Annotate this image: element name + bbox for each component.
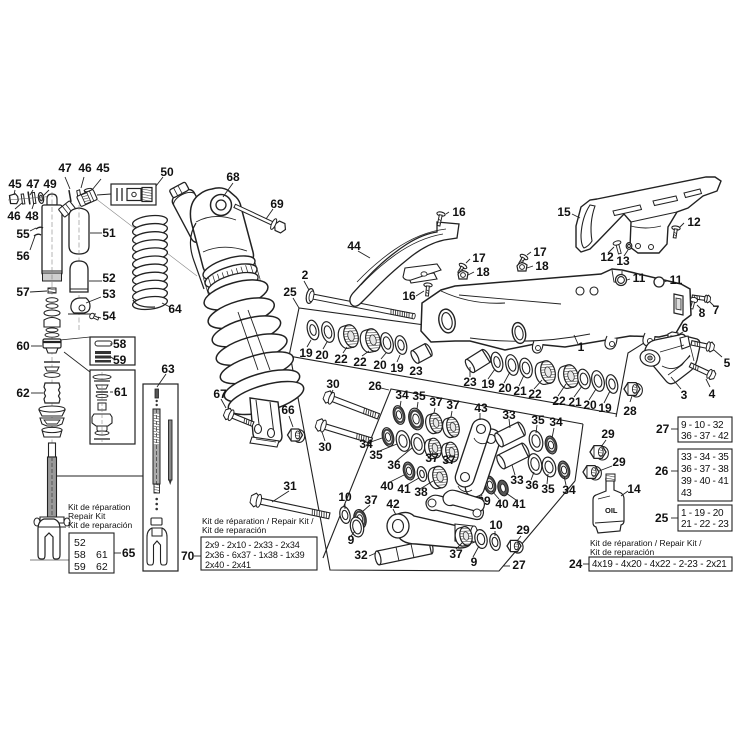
svg-text:34: 34 (562, 483, 576, 497)
svg-text:35: 35 (369, 448, 383, 462)
svg-text:1 - 19 - 20: 1 - 19 - 20 (681, 508, 724, 519)
svg-text:66: 66 (281, 403, 295, 417)
svg-text:36: 36 (525, 478, 539, 492)
svg-text:2x9 - 2x10 - 2x33 - 2x34: 2x9 - 2x10 - 2x33 - 2x34 (205, 540, 300, 550)
svg-text:54: 54 (102, 309, 116, 323)
svg-text:29: 29 (601, 427, 615, 441)
svg-text:53: 53 (102, 287, 116, 301)
svg-text:1: 1 (578, 340, 585, 354)
svg-text:Kit de reparación: Kit de reparación (202, 525, 267, 535)
svg-text:67: 67 (213, 387, 227, 401)
svg-text:20: 20 (315, 348, 329, 362)
svg-text:33: 33 (502, 408, 516, 422)
svg-text:45: 45 (8, 177, 22, 191)
svg-text:48: 48 (25, 209, 39, 223)
svg-text:22: 22 (552, 394, 566, 408)
svg-text:26: 26 (368, 379, 382, 393)
svg-text:37: 37 (446, 398, 460, 412)
svg-text:16: 16 (402, 289, 416, 303)
svg-text:20: 20 (498, 381, 512, 395)
svg-text:36 - 37 - 38: 36 - 37 - 38 (681, 464, 729, 475)
svg-text:59: 59 (113, 353, 127, 367)
svg-text:41: 41 (397, 482, 411, 496)
svg-text:3: 3 (681, 388, 688, 402)
svg-text:33 - 34 - 35: 33 - 34 - 35 (681, 452, 729, 463)
svg-text:18: 18 (476, 265, 490, 279)
svg-text:36 - 37 - 42: 36 - 37 - 42 (681, 431, 729, 442)
svg-text:70: 70 (181, 549, 195, 563)
svg-text:9: 9 (471, 555, 478, 569)
svg-text:42: 42 (386, 497, 400, 511)
svg-text:4: 4 (709, 387, 716, 401)
svg-text:Kit de reparación: Kit de reparación (590, 547, 655, 557)
svg-text:40: 40 (380, 479, 394, 493)
svg-text:43: 43 (474, 401, 488, 415)
svg-text:30: 30 (326, 377, 340, 391)
svg-text:46: 46 (7, 209, 21, 223)
svg-text:23: 23 (409, 364, 423, 378)
svg-text:23: 23 (463, 375, 477, 389)
svg-text:37: 37 (364, 493, 378, 507)
svg-text:45: 45 (96, 161, 110, 175)
svg-text:31: 31 (283, 479, 297, 493)
svg-text:44: 44 (347, 239, 361, 253)
svg-text:22: 22 (528, 387, 542, 401)
svg-text:2x40 - 2x41: 2x40 - 2x41 (205, 560, 251, 570)
svg-text:29: 29 (516, 523, 530, 537)
svg-text:47: 47 (58, 161, 72, 175)
svg-text:4x19 - 4x20 - 4x22 - 2-23 - 2x: 4x19 - 4x20 - 4x22 - 2-23 - 2x21 (592, 559, 727, 570)
svg-text:OIL: OIL (605, 506, 618, 515)
svg-text:35: 35 (531, 413, 545, 427)
svg-text:62: 62 (16, 386, 30, 400)
svg-text:30: 30 (318, 440, 332, 454)
svg-text:9: 9 (348, 533, 355, 547)
svg-text:12: 12 (600, 250, 614, 264)
svg-text:52: 52 (74, 537, 86, 549)
svg-text:34: 34 (549, 415, 563, 429)
svg-text:41: 41 (512, 497, 526, 511)
svg-text:40: 40 (495, 497, 509, 511)
svg-text:21: 21 (568, 395, 582, 409)
svg-text:11: 11 (670, 273, 683, 287)
svg-text:47: 47 (26, 177, 40, 191)
svg-text:26: 26 (655, 464, 669, 478)
svg-text:58: 58 (113, 337, 127, 351)
svg-text:28: 28 (623, 404, 637, 418)
svg-text:34: 34 (395, 388, 409, 402)
svg-text:43: 43 (681, 488, 692, 499)
svg-text:35: 35 (541, 482, 555, 496)
svg-text:6: 6 (682, 321, 689, 335)
svg-text:35: 35 (412, 389, 426, 403)
svg-text:2: 2 (302, 268, 309, 282)
svg-text:49: 49 (43, 177, 57, 191)
svg-text:Kit de reparación: Kit de reparación (68, 520, 133, 530)
svg-text:69: 69 (270, 197, 284, 211)
svg-text:58: 58 (74, 549, 86, 561)
svg-text:8: 8 (699, 306, 706, 320)
svg-text:55: 55 (16, 227, 30, 241)
svg-text:37: 37 (442, 453, 456, 467)
svg-text:39 - 40 - 41: 39 - 40 - 41 (681, 476, 729, 487)
svg-text:18: 18 (535, 259, 549, 273)
svg-text:13: 13 (616, 254, 630, 268)
svg-text:12: 12 (687, 215, 701, 229)
svg-text:32: 32 (354, 548, 368, 562)
svg-text:5: 5 (724, 356, 731, 370)
svg-text:19: 19 (598, 401, 612, 415)
svg-text:19: 19 (481, 377, 495, 391)
svg-text:21 - 22 - 23: 21 - 22 - 23 (681, 519, 729, 530)
svg-text:46: 46 (78, 161, 92, 175)
svg-text:27: 27 (512, 558, 526, 572)
svg-text:62: 62 (96, 561, 108, 573)
svg-text:22: 22 (353, 355, 367, 369)
svg-text:61: 61 (114, 385, 128, 399)
svg-text:21: 21 (513, 384, 527, 398)
svg-text:9 - 10 - 32: 9 - 10 - 32 (681, 420, 724, 431)
svg-text:33: 33 (510, 473, 524, 487)
svg-text:68: 68 (226, 170, 240, 184)
svg-text:63: 63 (161, 362, 175, 376)
svg-text:16: 16 (452, 205, 466, 219)
svg-text:38: 38 (414, 485, 428, 499)
svg-text:27: 27 (656, 422, 670, 436)
svg-text:37: 37 (425, 451, 439, 465)
svg-text:10: 10 (489, 518, 503, 532)
svg-text:19: 19 (390, 361, 404, 375)
svg-text:7: 7 (713, 303, 720, 317)
svg-text:59: 59 (74, 561, 86, 573)
svg-text:14: 14 (627, 482, 641, 496)
svg-text:25: 25 (655, 511, 669, 525)
svg-text:52: 52 (102, 271, 116, 285)
svg-text:20: 20 (583, 398, 597, 412)
svg-text:2x36 - 6x37 - 1x38 - 1x39: 2x36 - 6x37 - 1x38 - 1x39 (205, 550, 305, 560)
svg-text:51: 51 (102, 226, 116, 240)
svg-text:64: 64 (168, 302, 182, 316)
svg-text:24: 24 (569, 557, 583, 571)
svg-text:15: 15 (557, 205, 571, 219)
svg-text:61: 61 (96, 549, 108, 561)
svg-text:60: 60 (16, 339, 30, 353)
svg-text:57: 57 (16, 285, 30, 299)
svg-text:20: 20 (373, 358, 387, 372)
svg-text:17: 17 (533, 245, 547, 259)
svg-text:11: 11 (633, 271, 646, 285)
svg-text:37: 37 (449, 547, 463, 561)
svg-text:17: 17 (472, 251, 486, 265)
svg-text:65: 65 (122, 546, 136, 560)
svg-text:37: 37 (429, 395, 443, 409)
svg-text:25: 25 (283, 285, 297, 299)
svg-text:19: 19 (299, 346, 313, 360)
svg-text:36: 36 (387, 458, 401, 472)
svg-text:56: 56 (16, 249, 30, 263)
svg-text:50: 50 (160, 165, 174, 179)
svg-text:29: 29 (612, 455, 626, 469)
svg-text:22: 22 (334, 352, 348, 366)
svg-text:10: 10 (338, 490, 352, 504)
